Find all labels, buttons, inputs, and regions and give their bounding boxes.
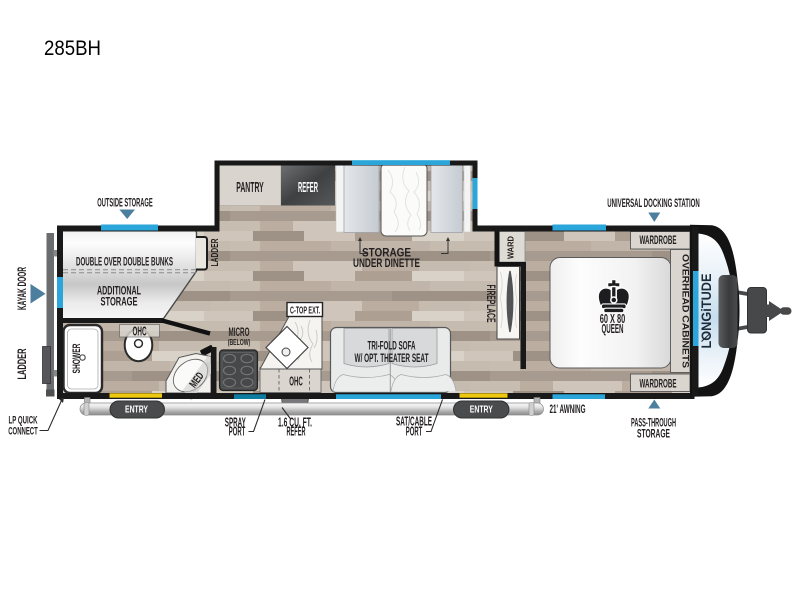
svg-text:DOUBLE OVER DOUBLE BUNKS: DOUBLE OVER DOUBLE BUNKS [76,255,173,269]
svg-text:OHC: OHC [133,325,147,339]
svg-text:KAYAK DOOR: KAYAK DOOR [16,267,29,310]
svg-text:PORT: PORT [229,425,246,439]
svg-text:OUTSIDE STORAGE: OUTSIDE STORAGE [97,196,153,210]
svg-text:LADDER: LADDER [16,348,29,379]
svg-text:PORT: PORT [406,425,423,439]
svg-text:ENTRY: ENTRY [125,405,148,416]
svg-text:OVERHEAD CABINETS: OVERHEAD CABINETS [680,254,691,368]
svg-text:C-TOP EXT.: C-TOP EXT. [290,305,320,316]
svg-text:PANTRY: PANTRY [236,179,264,196]
svg-text:WARDROBE: WARDROBE [640,234,677,247]
svg-text:ENTRY: ENTRY [470,405,493,416]
svg-text:UNDER DINETTE: UNDER DINETTE [353,257,420,270]
svg-text:LADDER: LADDER [209,238,221,266]
svg-text:FIREPLACE: FIREPLACE [484,285,498,323]
svg-text:WARD: WARD [506,236,516,259]
svg-text:STORAGE: STORAGE [637,426,670,440]
svg-text:STORAGE: STORAGE [101,295,138,309]
svg-text:REFER: REFER [287,425,306,439]
svg-text:CONNECT: CONNECT [8,426,38,438]
svg-text:REFER: REFER [298,179,318,196]
svg-text:WARDROBE: WARDROBE [640,377,677,390]
svg-text:SHOWER: SHOWER [71,343,83,373]
svg-text:(BELOW): (BELOW) [228,337,251,347]
svg-text:21' AWNING: 21' AWNING [550,403,586,416]
svg-text:W/ OPT. THEATER SEAT: W/ OPT. THEATER SEAT [355,351,429,365]
svg-text:285BH: 285BH [44,36,101,60]
svg-text:OHC: OHC [289,374,303,389]
svg-text:QUEEN: QUEEN [602,322,624,336]
svg-text:UNIVERSAL DOCKING STATION: UNIVERSAL DOCKING STATION [607,196,700,210]
